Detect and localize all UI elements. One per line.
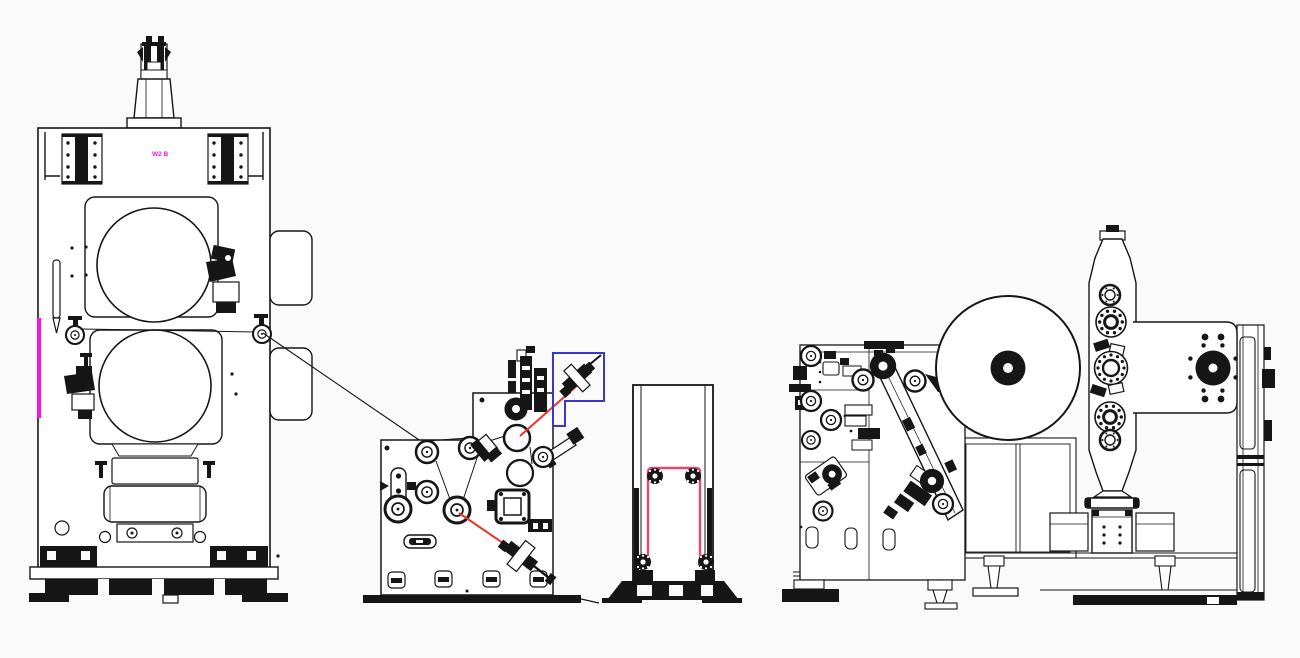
upper-calender-roll <box>97 208 211 322</box>
frame-bolt-hole <box>195 532 206 543</box>
arm-pivot <box>870 353 896 379</box>
guide-roller-c <box>416 481 438 503</box>
guide-roller-h <box>533 447 553 467</box>
lower-calender-roll <box>99 330 211 442</box>
process-roller-lower <box>507 460 533 486</box>
drive-roller <box>504 397 527 420</box>
turret-bearing-2 <box>1096 307 1126 337</box>
bolt-plate-right <box>208 134 248 184</box>
frame-bolt-hole <box>100 532 111 543</box>
guide-roller-a <box>416 441 438 463</box>
unit-base <box>363 595 581 603</box>
machine-label: W2 B <box>152 151 169 158</box>
stand-base <box>602 581 742 603</box>
unwind-roller-2 <box>801 391 821 411</box>
unwind-roller-5 <box>853 370 874 391</box>
slot-gauge <box>53 260 60 333</box>
bolt-plate-left <box>62 134 102 184</box>
guard-fence <box>1237 325 1275 600</box>
stand-roller-top-right <box>685 468 701 484</box>
handle-slot <box>404 535 436 548</box>
magenta-edge-mark <box>37 318 41 418</box>
stand-roller-top-left <box>647 468 663 484</box>
process-roller-upper <box>504 425 530 451</box>
guide-roller-d <box>385 496 411 522</box>
guide-roller-e <box>444 497 470 523</box>
turret-bearing-3 <box>1095 402 1125 432</box>
frame-top-bar <box>864 341 904 349</box>
selection-callout-box <box>553 353 604 426</box>
terminal-block <box>528 519 552 532</box>
diagonal-fixture-upper <box>551 354 601 403</box>
turret-bearing-1 <box>1100 285 1120 305</box>
unwind-roller-4 <box>802 431 820 449</box>
unwind-roller-7 <box>814 502 833 521</box>
frame-dot <box>385 446 390 451</box>
turret-bearing-4 <box>1100 430 1120 450</box>
machine-line-drawing: W2 B <box>0 0 1300 658</box>
cad-drawing-canvas: W2 B <box>0 0 1300 658</box>
calender-press-machine: W2 B <box>29 36 312 603</box>
hydraulic-cylinder <box>127 36 181 128</box>
turret-center-gear <box>1095 352 1128 385</box>
wound-roll <box>936 296 1080 440</box>
unwind-roller-3 <box>821 410 841 430</box>
web-guide-stand <box>602 385 742 603</box>
winder-unit-machine <box>782 225 1275 609</box>
unit-base-step <box>581 599 599 603</box>
unwind-roller-1 <box>801 346 821 366</box>
small-tab <box>407 482 416 490</box>
stand-roller-bottom-right <box>698 554 714 570</box>
frame-dot <box>466 590 469 593</box>
side-box-lower <box>270 348 312 420</box>
stand-roller-bottom-left <box>635 554 651 570</box>
frame-bolt-hole <box>55 521 69 535</box>
unwind-roller-6 <box>905 371 926 392</box>
side-box-upper <box>270 231 312 305</box>
process-unit-machine <box>363 346 604 603</box>
frame-dot <box>480 398 485 403</box>
